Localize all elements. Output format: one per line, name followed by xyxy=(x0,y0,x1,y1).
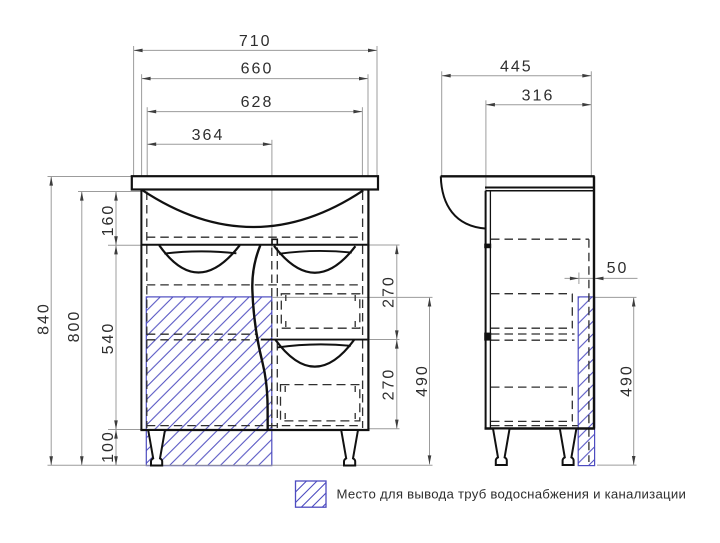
svg-text:50: 50 xyxy=(607,260,629,277)
svg-text:490: 490 xyxy=(619,364,636,397)
svg-text:710: 710 xyxy=(239,33,272,50)
svg-text:270: 270 xyxy=(381,368,398,401)
svg-text:316: 316 xyxy=(522,88,555,105)
svg-text:160: 160 xyxy=(100,204,117,237)
svg-text:490: 490 xyxy=(414,364,431,397)
svg-text:840: 840 xyxy=(36,302,53,335)
svg-text:800: 800 xyxy=(66,310,83,343)
svg-text:540: 540 xyxy=(100,322,117,355)
svg-text:628: 628 xyxy=(241,94,274,111)
svg-text:364: 364 xyxy=(192,127,225,144)
svg-text:270: 270 xyxy=(381,275,398,308)
svg-text:445: 445 xyxy=(500,59,533,76)
svg-text:660: 660 xyxy=(241,61,274,78)
svg-text:100: 100 xyxy=(100,430,117,463)
svg-text:Место для вывода труб водоснаб: Место для вывода труб водоснабжения и ка… xyxy=(337,487,687,502)
